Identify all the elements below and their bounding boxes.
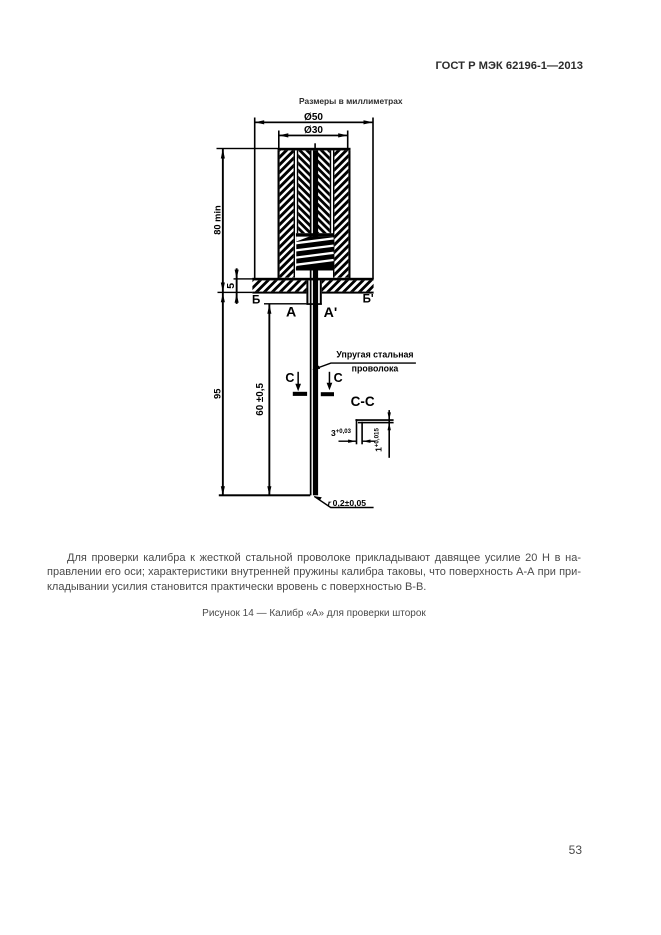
svg-text:проволока: проволока bbox=[352, 363, 399, 373]
svg-text:Б': Б' bbox=[363, 294, 374, 306]
svg-text:Ø50: Ø50 bbox=[304, 112, 323, 123]
svg-text:Упругая стальная: Упругая стальная bbox=[336, 350, 413, 360]
svg-text:95: 95 bbox=[212, 389, 222, 399]
svg-text:1+0,015: 1+0,015 bbox=[373, 428, 383, 452]
svg-text:С-С: С-С bbox=[351, 394, 375, 409]
svg-text:60 ±0,5: 60 ±0,5 bbox=[255, 383, 266, 416]
svg-text:3+0,03: 3+0,03 bbox=[331, 428, 352, 438]
svg-text:80 min: 80 min bbox=[213, 205, 223, 235]
svg-text:Б: Б bbox=[252, 295, 260, 307]
svg-text:Ø30: Ø30 bbox=[304, 125, 323, 136]
svg-text:5: 5 bbox=[225, 283, 237, 289]
svg-text:А': А' bbox=[324, 305, 338, 321]
svg-text:С: С bbox=[285, 371, 294, 385]
svg-text:r 0,2±0,05: r 0,2±0,05 bbox=[328, 498, 367, 508]
svg-text:С: С bbox=[334, 371, 343, 385]
svg-text:А: А bbox=[286, 304, 296, 320]
